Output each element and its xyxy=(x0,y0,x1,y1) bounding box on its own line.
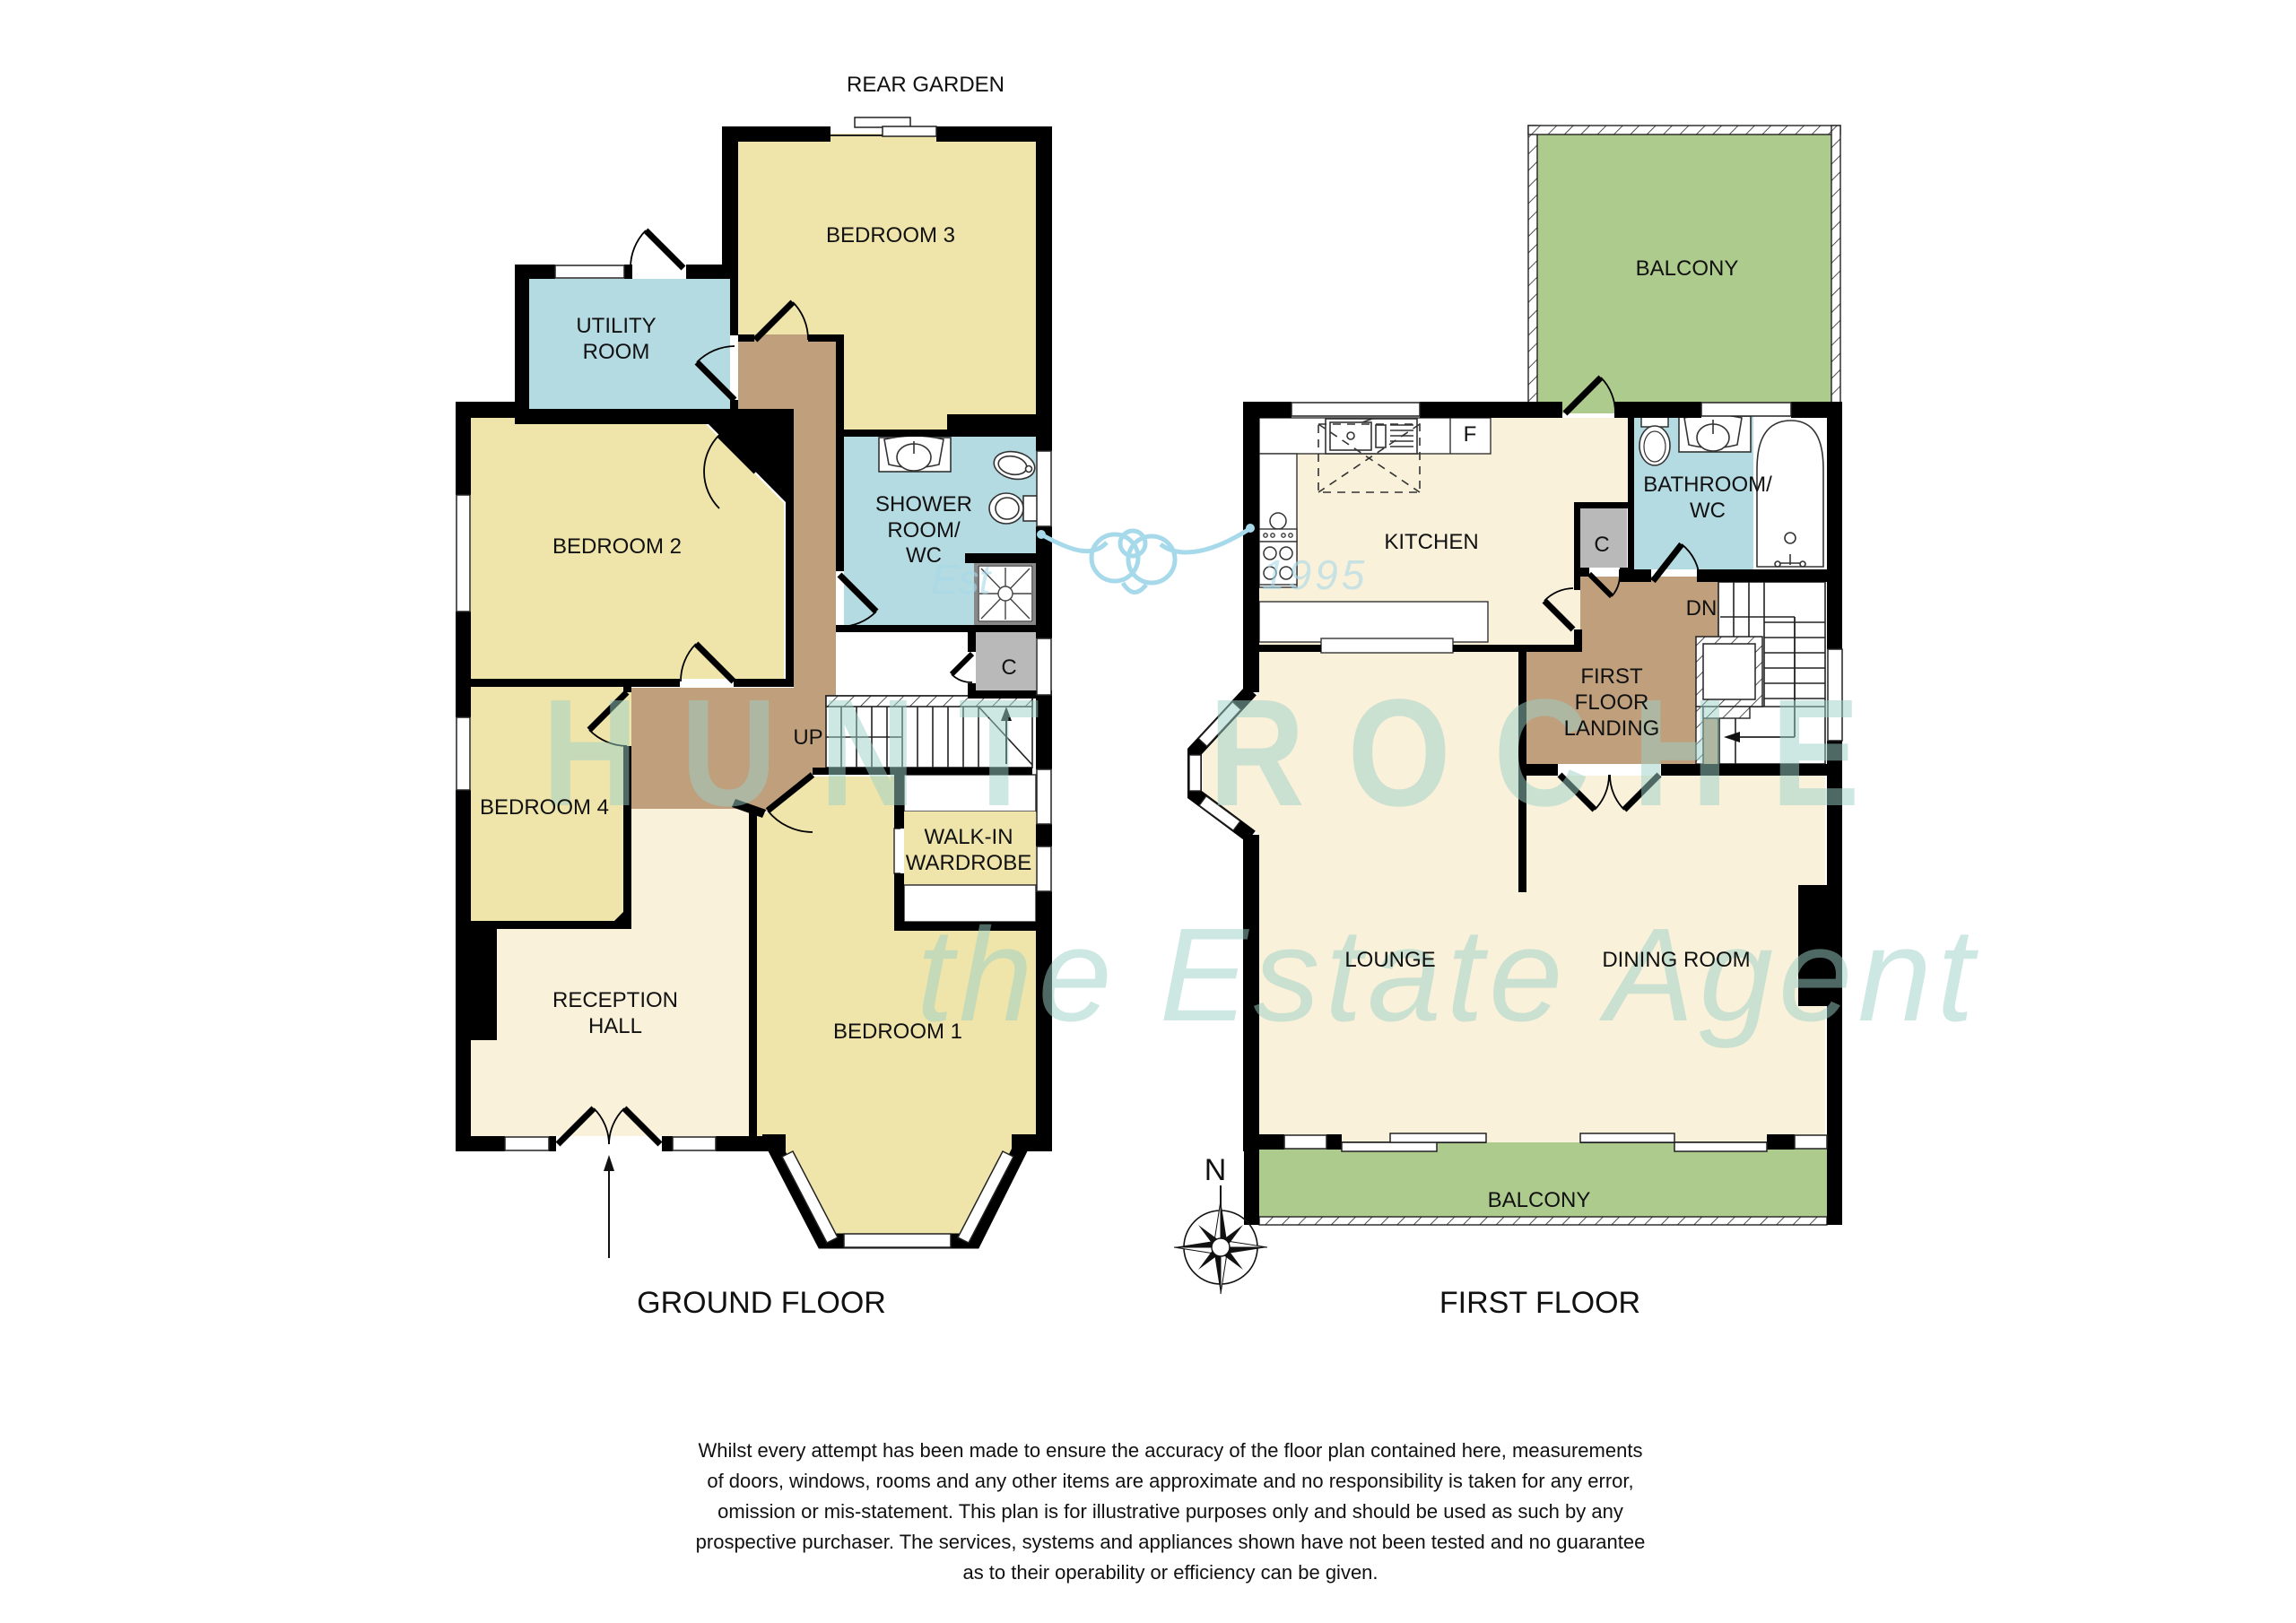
svg-text:BEDROOM 1: BEDROOM 1 xyxy=(833,1020,962,1044)
svg-text:ROOM/: ROOM/ xyxy=(887,518,961,542)
svg-text:LANDING: LANDING xyxy=(1564,716,1660,741)
svg-text:N: N xyxy=(1205,1153,1227,1187)
svg-text:ROOM: ROOM xyxy=(583,340,650,364)
svg-text:DN: DN xyxy=(1686,596,1718,621)
svg-text:UTILITY: UTILITY xyxy=(576,314,656,338)
svg-text:F: F xyxy=(1464,422,1477,447)
svg-text:BALCONY: BALCONY xyxy=(1636,256,1739,281)
svg-text:GROUND FLOOR: GROUND FLOOR xyxy=(637,1286,886,1320)
svg-text:BALCONY: BALCONY xyxy=(1488,1188,1591,1212)
svg-text:of doors, windows, rooms and a: of doors, windows, rooms and any other i… xyxy=(707,1470,1633,1492)
svg-text:WARDROBE: WARDROBE xyxy=(906,851,1031,875)
svg-text:DINING ROOM: DINING ROOM xyxy=(1602,948,1750,972)
svg-text:FIRST: FIRST xyxy=(1580,664,1643,689)
svg-text:prospective purchaser. The ser: prospective purchaser. The services, sys… xyxy=(696,1531,1646,1553)
svg-text:KITCHEN: KITCHEN xyxy=(1384,530,1478,554)
svg-text:WC: WC xyxy=(906,543,942,568)
svg-text:WC: WC xyxy=(1690,499,1726,523)
svg-text:REAR GARDEN: REAR GARDEN xyxy=(847,73,1004,97)
svg-text:as to their operability or eff: as to their operability or efficiency ca… xyxy=(962,1561,1378,1584)
svg-text:FIRST FLOOR: FIRST FLOOR xyxy=(1439,1286,1640,1320)
svg-text:C: C xyxy=(1594,533,1609,557)
svg-text:omission or mis-statement. Thi: omission or mis-statement. This plan is … xyxy=(717,1500,1623,1523)
svg-text:HUNT ROCHE: HUNT ROCHE xyxy=(543,667,1903,838)
svg-text:C: C xyxy=(1001,655,1016,680)
svg-text:BATHROOM/: BATHROOM/ xyxy=(1643,473,1772,497)
svg-text:FLOOR: FLOOR xyxy=(1575,690,1649,715)
svg-text:RECEPTION: RECEPTION xyxy=(552,988,678,1012)
svg-text:BEDROOM 3: BEDROOM 3 xyxy=(826,223,955,247)
svg-text:UP: UP xyxy=(793,725,822,750)
svg-text:Whilst every attempt has been: Whilst every attempt has been made to en… xyxy=(699,1439,1643,1462)
svg-text:the Estate Agent: the Estate Agent xyxy=(917,901,1979,1049)
svg-text:SHOWER: SHOWER xyxy=(875,492,972,516)
svg-text:BEDROOM 4: BEDROOM 4 xyxy=(480,795,609,820)
svg-text:1995: 1995 xyxy=(1262,551,1368,598)
svg-text:WALK-IN: WALK-IN xyxy=(924,825,1013,849)
svg-text:HALL: HALL xyxy=(588,1014,642,1038)
svg-text:LOUNGE: LOUNGE xyxy=(1344,948,1435,972)
svg-text:BEDROOM 2: BEDROOM 2 xyxy=(552,534,682,559)
